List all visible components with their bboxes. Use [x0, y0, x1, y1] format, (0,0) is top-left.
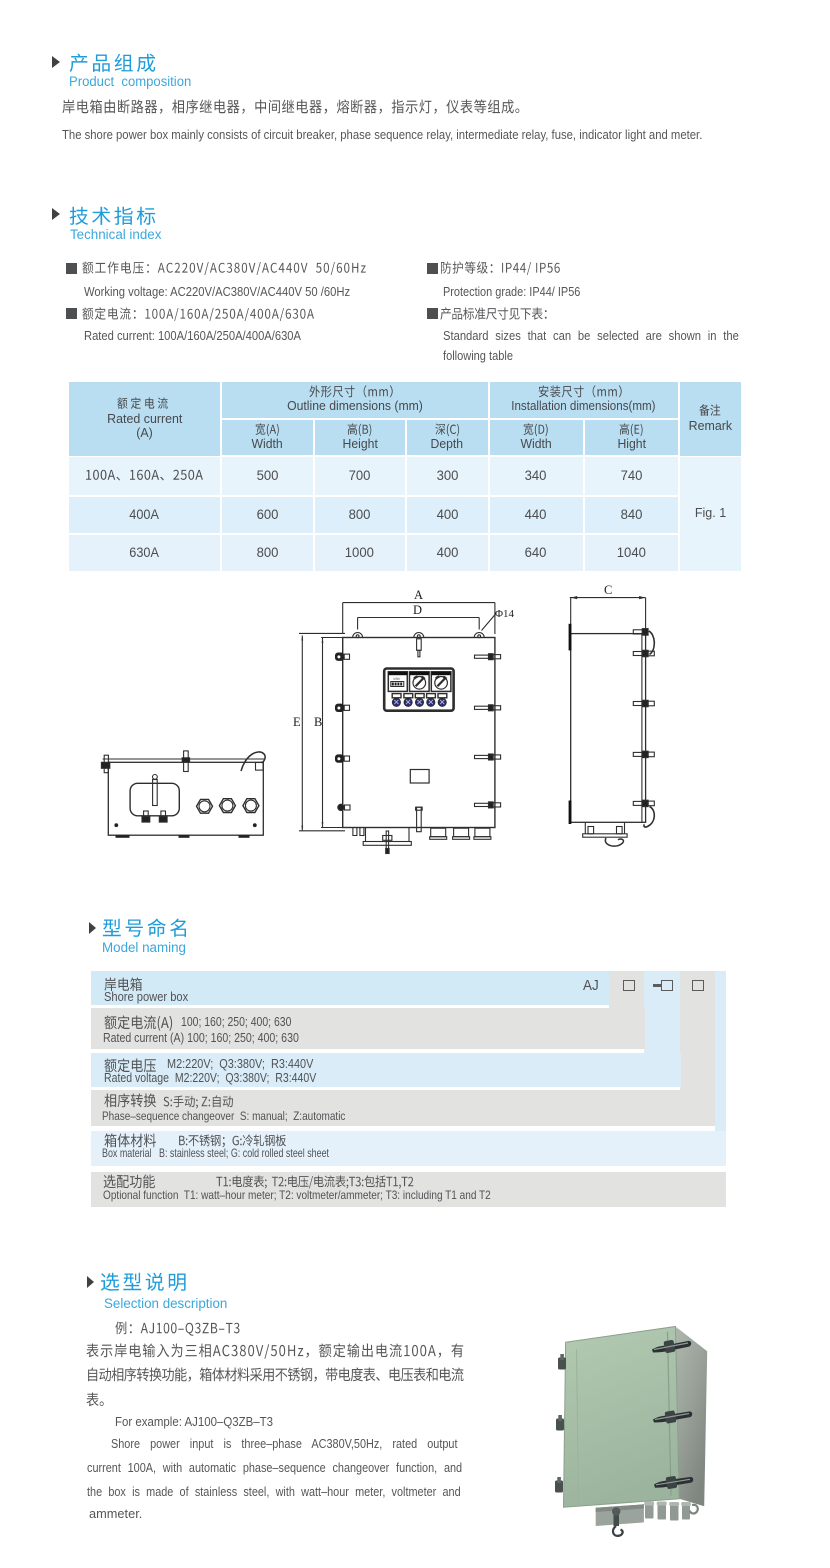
svg-text:Φ14: Φ14	[495, 608, 515, 620]
svg-text:kWh: kWh	[394, 677, 401, 681]
svg-text:B: B	[314, 715, 322, 729]
svg-text:E: E	[293, 715, 301, 729]
svg-text:A: A	[414, 588, 423, 602]
svg-text:C: C	[604, 583, 612, 597]
svg-text:D: D	[413, 603, 422, 617]
